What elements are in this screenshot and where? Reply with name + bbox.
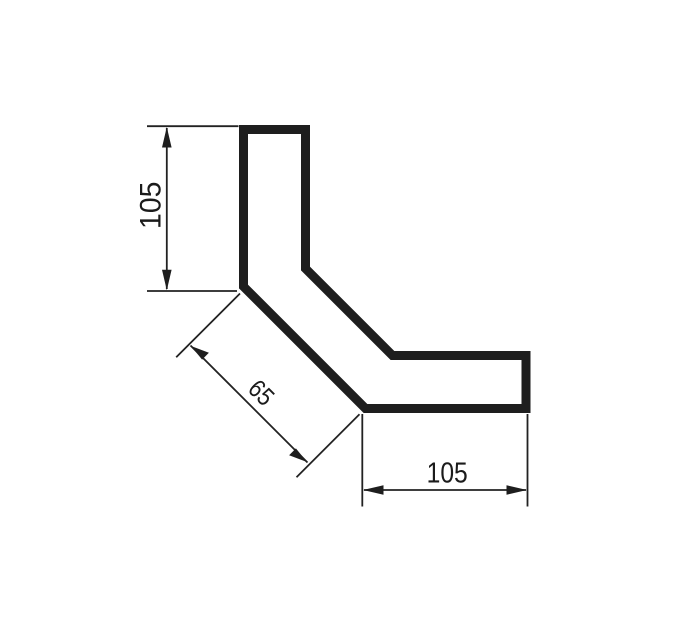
svg-text:65: 65 (242, 375, 279, 412)
svg-text:105: 105 (427, 457, 468, 489)
svg-text:105: 105 (135, 182, 168, 229)
